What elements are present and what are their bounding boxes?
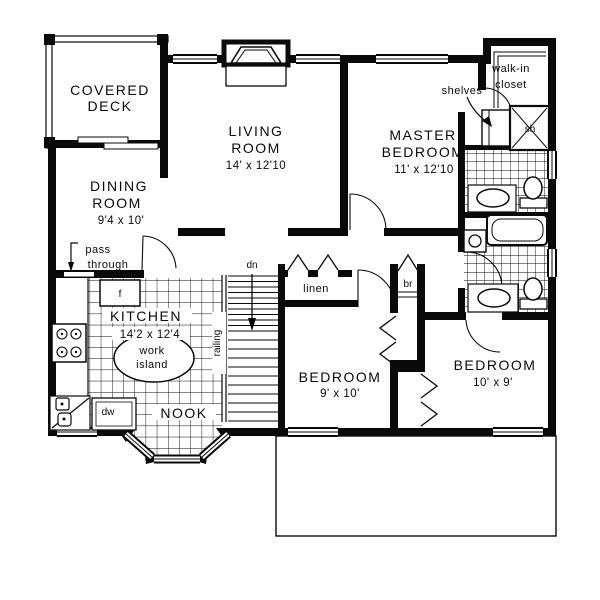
bedroom-right-dims: 10' x 9' <box>473 377 513 389</box>
stairs <box>222 274 278 422</box>
broom-bifold-door <box>398 255 418 271</box>
through-label: through <box>88 259 129 271</box>
dining-room-dims: 9'4 x 10' <box>98 215 145 227</box>
kitchen-door <box>142 236 176 270</box>
broom-shelf <box>398 292 417 297</box>
kitchen-label: KITCHEN <box>110 308 182 324</box>
living-room-dims: 14' x 12'10 <box>226 160 286 172</box>
bedroom-right-closet-bifolds <box>421 374 437 426</box>
work-island-label-2: island <box>136 359 168 371</box>
bedroom-left-closet-bifolds <box>380 316 396 366</box>
bath-vanity <box>468 284 518 312</box>
pass-through-arrow <box>68 243 78 272</box>
stairs-down-arrow <box>248 274 256 331</box>
bathtub <box>487 215 547 245</box>
fridge-label: f <box>119 289 122 300</box>
ensuite-vanity <box>468 185 516 212</box>
fireplace <box>224 42 288 86</box>
shelf-unit <box>482 110 512 146</box>
walkin-closet-label-1: walk-in <box>491 63 530 75</box>
floor-plan-page: COVERED DECK LIVING ROOM 14' x 12'10 MAS… <box>0 0 600 600</box>
pass-label: pass <box>85 244 110 256</box>
shelves-label: shelves <box>442 85 483 97</box>
bedroom-right-label: BEDROOM <box>454 357 537 373</box>
master-bedroom-label-1: MASTER <box>389 127 456 143</box>
master-door <box>350 194 386 230</box>
bedroom-left-dims: 9' x 10' <box>320 388 360 400</box>
living-room-label-2: ROOM <box>231 140 281 156</box>
bedroom-left-label: BEDROOM <box>299 369 382 385</box>
dining-room-label-1: DINING <box>90 178 148 194</box>
stairs-down-label: dn <box>246 260 257 271</box>
dining-room-label-2: ROOM <box>92 195 142 211</box>
floor-plan-drawing: COVERED DECK LIVING ROOM 14' x 12'10 MAS… <box>0 0 600 600</box>
master-bedroom-dims: 11' x 12'10 <box>394 164 454 176</box>
kitchen-dims: 14'2 x 12'4 <box>120 329 181 341</box>
corner-sink <box>50 396 90 430</box>
linen-bifold-doors <box>288 255 338 270</box>
living-room-label-1: LIVING <box>229 123 284 139</box>
broom-closet-label: br <box>404 279 414 290</box>
master-bedroom-label-2: BEDROOM <box>382 144 465 160</box>
nook-label: NOOK <box>160 405 207 421</box>
walkin-closet-label-2: closet <box>495 79 527 91</box>
bedroom-left-door <box>358 270 395 307</box>
linen-label: linen <box>303 283 329 295</box>
covered-deck-label-2: DECK <box>88 98 133 114</box>
bedroom-right-door <box>466 320 500 352</box>
shower-label: sh <box>525 124 536 135</box>
pass-through-opening <box>64 272 94 277</box>
lower-level-outline <box>276 436 556 536</box>
covered-deck-label-1: COVERED <box>70 82 150 98</box>
stove <box>52 324 86 362</box>
work-island <box>114 334 194 382</box>
chute-box <box>464 230 486 252</box>
railing-label: railing <box>212 330 223 357</box>
dishwasher-label: dw <box>102 407 116 418</box>
work-island-label-1: work <box>138 345 164 357</box>
